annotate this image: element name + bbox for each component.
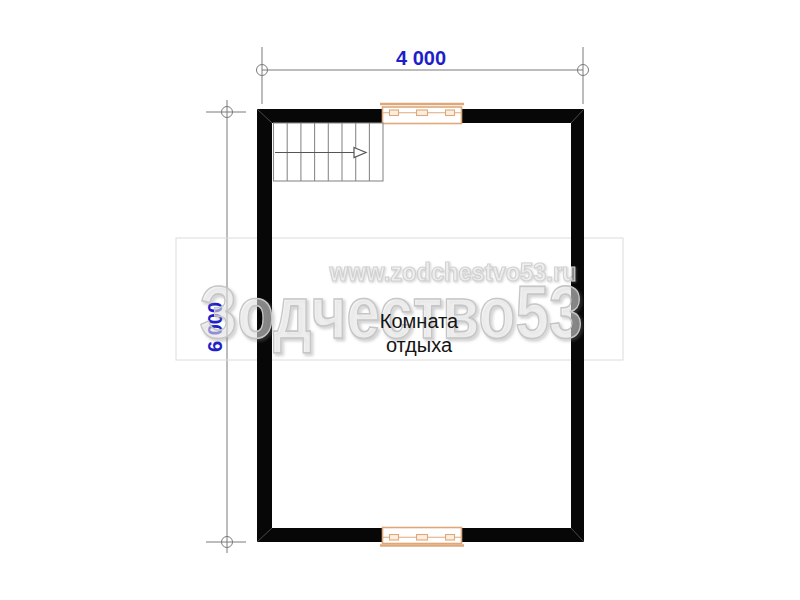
wall-top-left-segment [257,109,382,123]
top-dimension-label: 4 000 [396,47,446,69]
wall-top-right-segment [462,109,584,123]
wall-bottom-right-segment [462,528,584,542]
room-label-line1: Комната [380,310,459,332]
window-top [380,104,464,124]
floor-plan-drawing: 4 000 6 000 [0,0,800,600]
window-bottom [380,528,464,546]
floor-plan-canvas: 4 000 6 000 [0,0,800,600]
wall-bottom-left-segment [257,528,382,542]
room-label-line2: отдыха [386,334,453,356]
